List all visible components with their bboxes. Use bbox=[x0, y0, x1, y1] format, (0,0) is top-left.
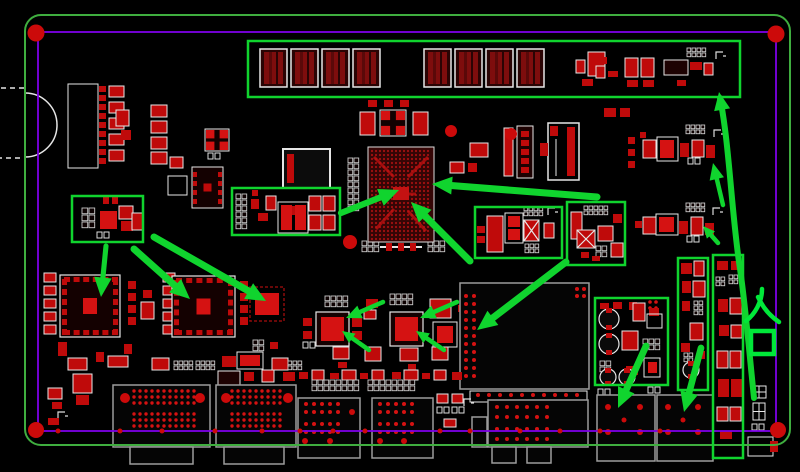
mounting-hole bbox=[28, 25, 45, 42]
smd-pad bbox=[422, 373, 430, 379]
smd-pad bbox=[251, 199, 259, 209]
smd-component bbox=[611, 243, 623, 257]
smd-pad bbox=[508, 229, 520, 240]
smd-pad bbox=[240, 355, 260, 366]
connector-outline bbox=[298, 398, 360, 458]
smd-component bbox=[730, 298, 742, 314]
mounting-hole bbox=[445, 125, 457, 137]
mounting-hole bbox=[28, 422, 44, 438]
smd-pad bbox=[384, 100, 393, 107]
via bbox=[665, 404, 671, 410]
smd-pad bbox=[690, 62, 702, 70]
smd-pad bbox=[143, 290, 152, 298]
smd-pad bbox=[613, 302, 622, 309]
smd-pad bbox=[608, 71, 618, 77]
smd-pad bbox=[648, 362, 657, 373]
via bbox=[468, 429, 473, 434]
smd-pad bbox=[706, 145, 715, 158]
pin-grid bbox=[230, 389, 281, 404]
smd-component bbox=[333, 347, 349, 359]
smd-pad bbox=[540, 143, 548, 156]
smd-pad bbox=[682, 281, 691, 293]
smd-pad bbox=[628, 149, 635, 156]
smd-component bbox=[342, 370, 356, 380]
smd-pad bbox=[508, 216, 520, 227]
smd-component bbox=[151, 152, 167, 164]
smd-component bbox=[641, 58, 654, 77]
via bbox=[283, 393, 293, 403]
via bbox=[260, 429, 265, 434]
smd-pad bbox=[244, 372, 254, 381]
via bbox=[363, 429, 368, 434]
via bbox=[558, 429, 563, 434]
smd-pad bbox=[121, 130, 131, 140]
smd-pad bbox=[303, 331, 312, 339]
connector-outline bbox=[372, 398, 433, 458]
pad-column bbox=[44, 273, 56, 334]
smd-pad bbox=[330, 373, 339, 379]
mounting-hole bbox=[505, 128, 517, 140]
mounting-hole bbox=[768, 26, 785, 43]
smd-pad bbox=[368, 100, 377, 107]
via bbox=[213, 429, 218, 434]
crystal bbox=[380, 110, 406, 136]
diode bbox=[524, 220, 539, 241]
smd-pad bbox=[477, 236, 485, 243]
smd-component bbox=[717, 407, 728, 421]
smd-pad bbox=[660, 140, 674, 158]
memory-chip bbox=[353, 49, 380, 87]
smd-pad bbox=[299, 372, 308, 379]
smd-pad bbox=[121, 221, 133, 231]
smd-pad bbox=[643, 80, 654, 87]
via bbox=[637, 404, 643, 410]
smd-pad bbox=[677, 80, 686, 86]
smd-component bbox=[404, 370, 418, 380]
smd-pad bbox=[103, 197, 109, 204]
smd-pad bbox=[392, 372, 401, 379]
smd-pad bbox=[258, 213, 268, 221]
smd-pad bbox=[338, 362, 347, 368]
smd-pad bbox=[718, 379, 729, 397]
via bbox=[665, 429, 671, 435]
smd-pad bbox=[720, 431, 732, 439]
smd-component bbox=[323, 196, 335, 211]
smd-component bbox=[452, 394, 463, 403]
smd-pad bbox=[360, 373, 368, 379]
smd-component bbox=[151, 121, 167, 133]
via bbox=[598, 429, 603, 434]
smd-component bbox=[625, 58, 638, 77]
memory-chip bbox=[322, 49, 349, 87]
smd-component bbox=[312, 370, 324, 380]
smd-pad bbox=[468, 163, 477, 172]
smd-component bbox=[598, 226, 613, 241]
ic-body bbox=[664, 60, 688, 75]
smd-component bbox=[704, 63, 713, 75]
smd-component bbox=[141, 302, 154, 319]
smd-pad bbox=[400, 100, 409, 107]
smd-pad bbox=[649, 308, 659, 316]
smd-pad bbox=[76, 395, 89, 405]
via bbox=[221, 393, 231, 403]
smd-component bbox=[693, 281, 705, 297]
smd-component bbox=[151, 137, 167, 149]
smd-component bbox=[576, 60, 585, 73]
smd-component bbox=[372, 370, 384, 380]
via bbox=[438, 429, 443, 434]
smd-component bbox=[413, 112, 428, 135]
smd-pad bbox=[635, 221, 642, 228]
via bbox=[302, 438, 308, 444]
smd-pad bbox=[283, 372, 295, 381]
smd-pad bbox=[582, 79, 593, 86]
smd-pad bbox=[681, 343, 690, 352]
smd-pad bbox=[398, 243, 404, 251]
qfn-chip bbox=[390, 312, 423, 346]
smd-component bbox=[437, 394, 448, 403]
via bbox=[622, 418, 627, 423]
smd-component bbox=[309, 196, 321, 211]
smd-pad bbox=[592, 256, 600, 261]
capacitor bbox=[600, 368, 616, 386]
smd-pad bbox=[600, 57, 607, 64]
smd-component bbox=[717, 351, 728, 368]
pcb-canvas bbox=[0, 0, 800, 472]
smd-component bbox=[109, 150, 124, 161]
smd-component bbox=[444, 419, 456, 427]
smd-pad bbox=[437, 326, 453, 343]
via bbox=[56, 429, 61, 434]
smd-pad bbox=[295, 205, 306, 230]
smd-component bbox=[544, 223, 554, 238]
smd-pad bbox=[718, 299, 728, 312]
mounting-hole bbox=[770, 422, 786, 438]
qfp-chip bbox=[60, 275, 120, 337]
connector-outline bbox=[472, 417, 487, 447]
smd-pad bbox=[680, 143, 689, 157]
via bbox=[605, 429, 611, 435]
memory-chip bbox=[260, 49, 287, 87]
smd-pad bbox=[681, 263, 692, 274]
smd-pad bbox=[100, 211, 117, 229]
via bbox=[377, 438, 383, 444]
via bbox=[695, 404, 701, 410]
smd-component bbox=[152, 358, 169, 370]
smd-pad bbox=[717, 261, 728, 270]
smd-component bbox=[434, 370, 446, 380]
via bbox=[681, 418, 686, 423]
via bbox=[298, 429, 303, 434]
mounting-hole bbox=[343, 235, 357, 249]
smd-component bbox=[622, 331, 638, 350]
smd-component bbox=[400, 348, 418, 361]
smd-pad bbox=[112, 197, 118, 204]
via bbox=[331, 429, 336, 434]
via bbox=[637, 429, 643, 435]
smd-pad bbox=[386, 243, 392, 251]
smd-component bbox=[108, 356, 128, 367]
connector-outline bbox=[130, 447, 193, 464]
smd-pad bbox=[48, 418, 59, 425]
smd-component bbox=[730, 407, 741, 421]
smd-pad bbox=[477, 226, 485, 233]
smd-pad bbox=[222, 356, 236, 367]
connector-outline bbox=[527, 447, 551, 463]
via bbox=[160, 429, 165, 434]
shield-can bbox=[283, 149, 330, 188]
connector-outline bbox=[492, 447, 516, 463]
ic-body bbox=[218, 371, 240, 385]
smd-component bbox=[48, 388, 62, 399]
smd-pad bbox=[640, 132, 646, 138]
capacitor bbox=[599, 308, 619, 330]
smd-pad bbox=[452, 372, 462, 380]
memory-chip bbox=[486, 49, 513, 87]
crystal bbox=[205, 129, 229, 151]
qfn-chip bbox=[316, 312, 349, 346]
smd-pad bbox=[682, 301, 690, 311]
smd-component bbox=[272, 358, 288, 370]
via bbox=[518, 429, 523, 434]
smd-component bbox=[68, 358, 87, 370]
smd-pad bbox=[719, 325, 729, 336]
smd-pad bbox=[252, 190, 258, 196]
smd-pad bbox=[303, 318, 312, 326]
smd-component bbox=[262, 370, 274, 382]
memory-chip bbox=[291, 49, 318, 87]
smd-pad bbox=[58, 342, 67, 356]
smd-pad bbox=[281, 205, 292, 230]
via bbox=[120, 393, 130, 403]
diode bbox=[577, 230, 595, 248]
smd-pad bbox=[628, 161, 635, 168]
pad-column bbox=[99, 86, 106, 164]
capacitor bbox=[599, 333, 619, 355]
smd-pad bbox=[604, 108, 616, 117]
via bbox=[327, 438, 333, 444]
smd-component bbox=[596, 66, 605, 78]
via bbox=[195, 393, 205, 403]
pin-grid bbox=[230, 412, 281, 427]
via bbox=[695, 429, 701, 435]
smd-component bbox=[151, 105, 167, 117]
connector-outline bbox=[597, 395, 655, 461]
smd-component bbox=[323, 215, 335, 230]
smd-component bbox=[487, 216, 503, 252]
smd-component bbox=[116, 110, 129, 126]
smd-component bbox=[119, 206, 133, 219]
smd-pad bbox=[731, 379, 742, 397]
smd-pad bbox=[96, 352, 104, 362]
smd-component bbox=[730, 351, 741, 368]
via bbox=[658, 429, 663, 434]
smd-pad bbox=[659, 217, 674, 232]
connector-outline bbox=[460, 283, 589, 389]
smd-component bbox=[132, 213, 143, 230]
smd-pad bbox=[352, 318, 362, 327]
smd-component bbox=[633, 303, 645, 321]
smd-component bbox=[266, 196, 276, 210]
smd-pad bbox=[581, 252, 589, 258]
smd-pad bbox=[627, 80, 638, 87]
smd-component bbox=[170, 157, 183, 168]
smd-component bbox=[450, 162, 464, 173]
smd-pad bbox=[124, 344, 132, 354]
smd-pad bbox=[628, 137, 635, 144]
memory-chip bbox=[424, 49, 451, 87]
smd-pad bbox=[770, 441, 778, 452]
via bbox=[401, 438, 407, 444]
smd-component bbox=[643, 140, 656, 158]
smd-pad bbox=[52, 402, 62, 409]
smd-component bbox=[470, 143, 488, 157]
qfn-chip bbox=[192, 167, 223, 208]
memory-chip bbox=[455, 49, 482, 87]
pcb-layout-view bbox=[0, 0, 800, 472]
bga-chip bbox=[368, 147, 434, 242]
smd-component bbox=[731, 325, 742, 338]
smd-component bbox=[690, 323, 703, 340]
via bbox=[605, 404, 611, 410]
smd-component bbox=[694, 261, 704, 276]
smd-pad bbox=[270, 342, 278, 349]
smd-pad bbox=[613, 214, 622, 223]
smd-component bbox=[109, 86, 124, 97]
smd-component bbox=[643, 217, 656, 234]
smd-pad bbox=[620, 108, 630, 117]
smd-component bbox=[73, 374, 92, 393]
via bbox=[349, 409, 355, 415]
memory-chip bbox=[517, 49, 544, 87]
smd-component bbox=[360, 112, 375, 135]
smd-pad bbox=[410, 243, 416, 251]
smd-component bbox=[692, 140, 704, 157]
smd-component bbox=[691, 217, 703, 235]
smd-pad bbox=[679, 221, 688, 234]
via bbox=[118, 429, 123, 434]
smd-component bbox=[309, 215, 321, 230]
smd-pad bbox=[408, 364, 416, 370]
connector-outline bbox=[224, 447, 284, 464]
